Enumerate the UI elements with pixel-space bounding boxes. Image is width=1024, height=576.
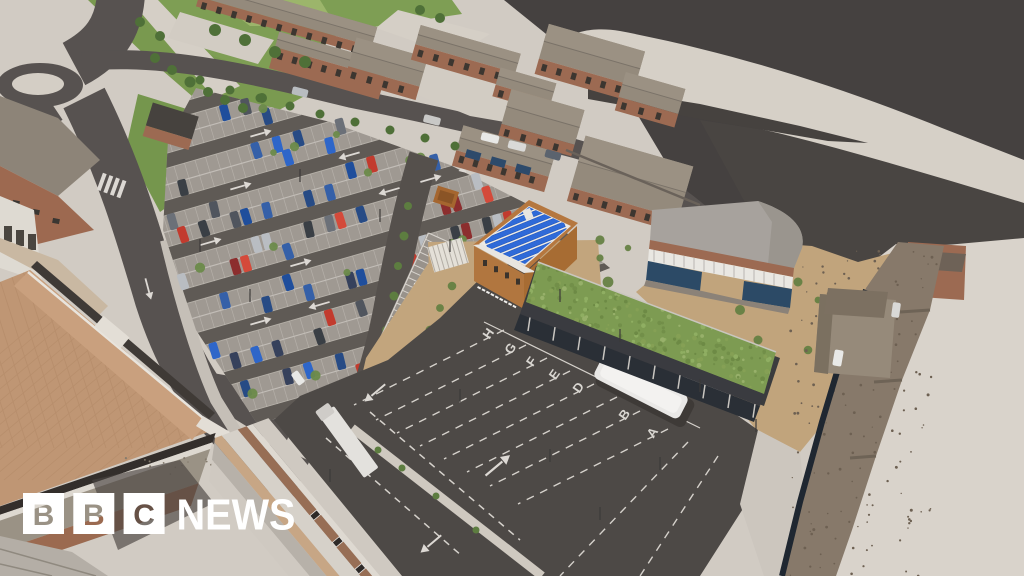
- svg-text:NEWS: NEWS: [177, 491, 296, 540]
